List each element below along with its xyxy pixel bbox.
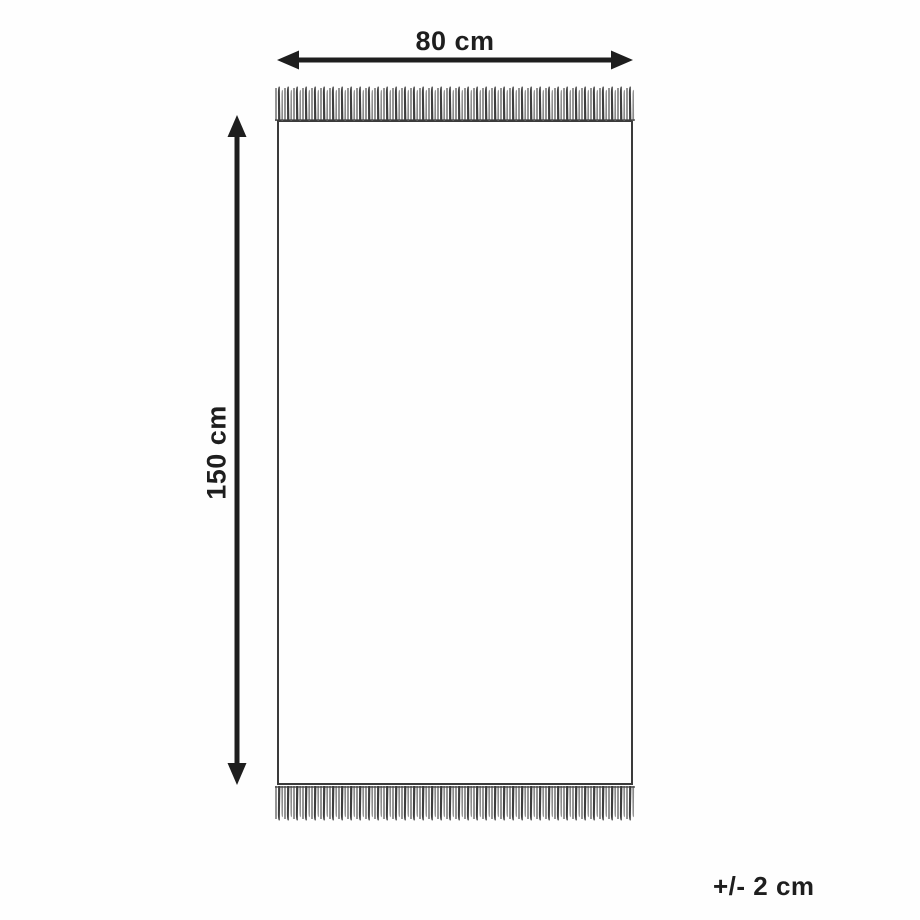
tolerance-label: +/- 2 cm <box>713 871 815 902</box>
height-label: 150 cm <box>202 333 233 573</box>
width-label: 80 cm <box>277 26 633 57</box>
dimension-diagram: 80 cm 150 cm +/- 2 cm <box>0 0 920 920</box>
fringe-top <box>275 83 635 121</box>
fringe-bottom <box>275 786 635 824</box>
rug-outline <box>277 120 633 785</box>
